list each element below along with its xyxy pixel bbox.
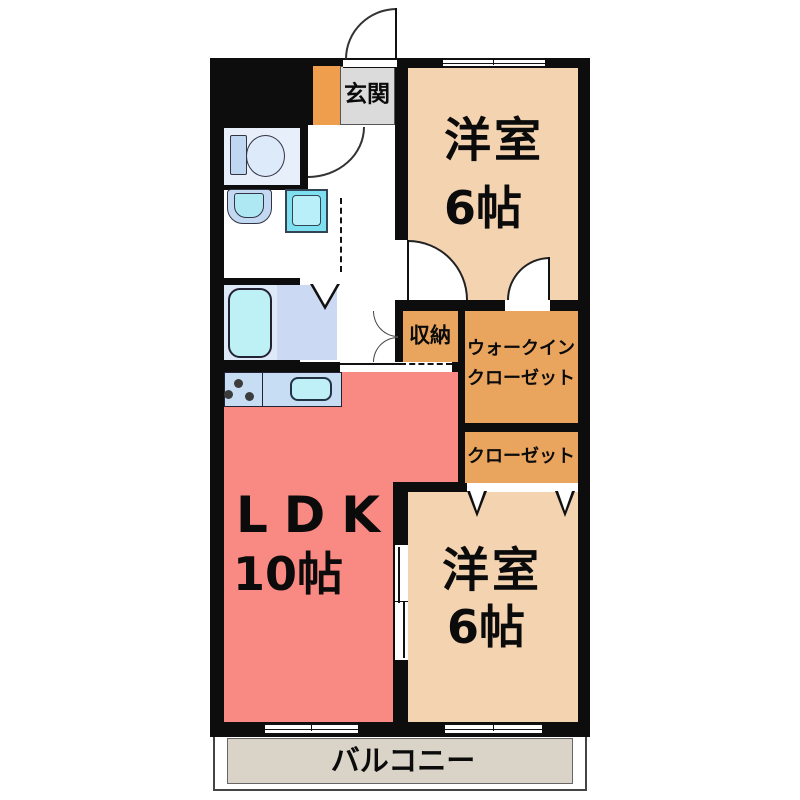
entrance-door-arc <box>345 8 397 59</box>
stove-icon <box>234 379 243 388</box>
room-size-bedroom-bottom: 6帖 <box>447 604 525 650</box>
window-glass-line <box>443 63 545 64</box>
window-tick <box>493 725 494 731</box>
room-label-storage: 収納 <box>409 326 451 347</box>
toilet-tank-icon <box>230 135 247 175</box>
bedroom-top-door-leaf <box>407 240 409 300</box>
kitchen-sink-icon <box>290 377 332 401</box>
room-size-ldk: 10帖 <box>233 551 343 597</box>
room-walk-in-closet <box>465 311 578 423</box>
bathroom-folding-door-triangle-inner <box>313 284 337 305</box>
ldk-boundary-solid-line <box>340 363 400 365</box>
washing-machine-tub-icon <box>292 195 321 226</box>
ldk-bedroom-sliding-door <box>395 545 408 660</box>
kitchen-divider <box>262 372 263 407</box>
toilet-bowl-icon <box>246 135 285 177</box>
room-label-closet: クローゼット <box>467 448 575 466</box>
window-tick <box>311 725 312 731</box>
closet-folding-door-triangle-right-inner <box>558 491 572 511</box>
room-label-bedroom-top: 洋室 <box>444 118 544 165</box>
bathtub-icon <box>228 288 272 358</box>
room-label-balcony: バルコニー <box>331 747 475 776</box>
room-label-wic-line2: クローゼット <box>467 370 575 388</box>
room-ldk-upper-right <box>393 372 458 482</box>
room-label-bedroom-bottom: 洋室 <box>442 548 542 595</box>
entrance-door-leaf <box>395 8 397 60</box>
entrance-threshold <box>343 59 397 68</box>
wic-door-leaf <box>548 257 550 300</box>
stove-icon <box>245 392 254 401</box>
window-tick <box>493 60 494 65</box>
stove-icon <box>224 390 233 399</box>
wic-door-gap <box>505 300 550 311</box>
room-label-entrance: 玄関 <box>344 84 390 107</box>
closet-folding-door-triangle-left-inner <box>470 491 484 511</box>
window-balcony-bedroom <box>445 723 542 735</box>
toilet-hall-wall <box>300 125 308 190</box>
washbasin-bowl-icon <box>234 193 264 218</box>
floor-plan: 玄関 洋室 6帖 収納 ウォークイン クローゼット クローゼット LDK 10帖… <box>0 0 800 800</box>
washroom-door-dash <box>340 198 342 272</box>
sliding-door-tick <box>395 601 408 602</box>
ldk-boundary-dashed-line <box>400 363 452 365</box>
window-balcony-ldk <box>265 723 358 735</box>
room-label-ldk: LDK <box>236 490 396 540</box>
window-top <box>443 58 545 68</box>
room-size-bedroom-top: 6帖 <box>444 185 522 231</box>
sliding-door-panel-line <box>398 547 400 603</box>
room-label-wic-line1: ウォークイン <box>467 340 575 358</box>
sliding-door-panel-line <box>403 602 405 658</box>
entrance-step <box>313 66 340 125</box>
